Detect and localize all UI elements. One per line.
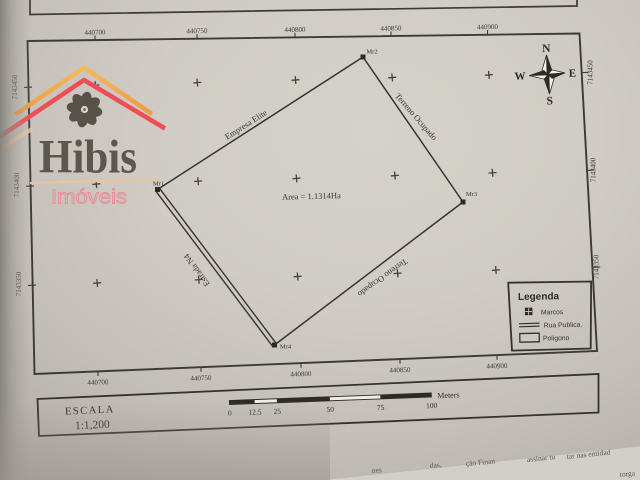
svg-text:440750: 440750	[190, 374, 212, 383]
svg-text:Hibis: Hibis	[39, 131, 137, 184]
svg-text:W: W	[514, 70, 525, 82]
svg-text:Area = 1.1314Ha: Area = 1.1314Ha	[282, 190, 341, 202]
svg-text:7143400: 7143400	[590, 157, 598, 182]
svg-text:Mr1: Mr1	[153, 181, 164, 188]
svg-text:torga: torga	[619, 468, 636, 479]
svg-text:440800: 440800	[284, 26, 306, 34]
svg-text:440750: 440750	[186, 27, 208, 35]
svg-text:Mr3: Mr3	[466, 191, 477, 198]
svg-text:Mr2: Mr2	[366, 49, 377, 56]
svg-text:Rua Publica.: Rua Publica.	[544, 322, 583, 330]
svg-text:440700: 440700	[87, 378, 109, 387]
svg-text:Legenda: Legenda	[518, 291, 560, 303]
svg-text:7143450: 7143450	[587, 60, 595, 85]
svg-text:E: E	[569, 68, 577, 80]
svg-text:Imóveis: Imóveis	[51, 187, 127, 209]
svg-text:S: S	[546, 95, 553, 107]
svg-text:440800: 440800	[290, 370, 312, 379]
svg-text:nes: nes	[371, 465, 382, 475]
svg-text:75: 75	[377, 403, 385, 412]
svg-text:Marcos: Marcos	[541, 309, 564, 316]
svg-text:440900: 440900	[486, 362, 508, 371]
svg-text:das,: das,	[429, 460, 442, 470]
svg-text:N: N	[542, 43, 551, 55]
svg-text:Poligono: Poligono	[543, 335, 570, 342]
svg-text:440700: 440700	[84, 28, 106, 36]
svg-text:440900: 440900	[477, 23, 499, 31]
svg-text:Meters: Meters	[437, 390, 460, 400]
svg-text:7143350: 7143350	[593, 254, 601, 279]
svg-text:Mr4: Mr4	[280, 344, 292, 351]
svg-text:440850: 440850	[389, 366, 411, 375]
svg-text:100: 100	[426, 401, 438, 410]
svg-text:440850: 440850	[380, 24, 402, 32]
